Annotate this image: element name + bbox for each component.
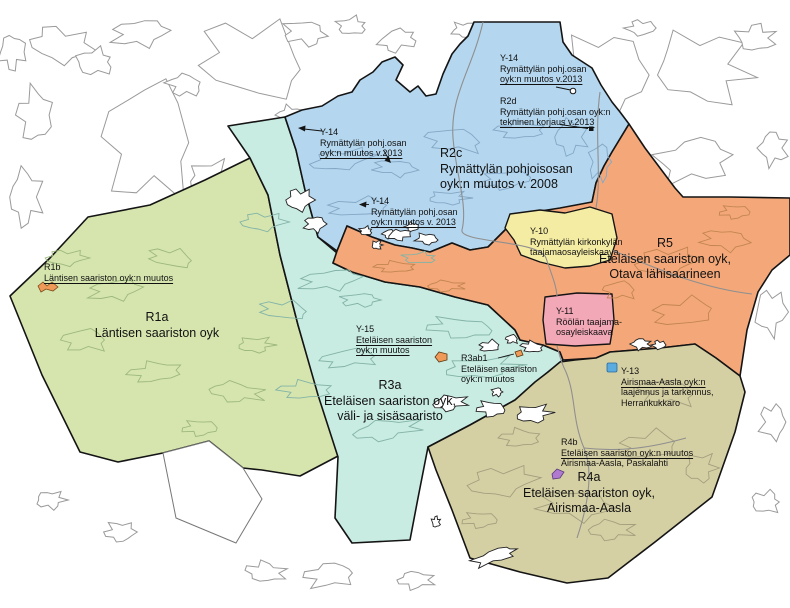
label-code: Y-11 — [556, 306, 622, 317]
label-line: Rymättylän pohjoisosan — [440, 162, 573, 178]
label-line: Herrankukkaro — [621, 398, 714, 409]
label-code: Y-14 — [320, 127, 407, 138]
label-line: väli- ja sisäsaaristo — [295, 409, 485, 425]
label-line: Läntisen saariston oyk — [62, 326, 252, 342]
label-code: R2d — [500, 96, 611, 107]
label-line: Rymättylän pohj.osan — [320, 138, 407, 149]
label-y11: Y-11 Röölän taajama- osayleiskaava — [556, 306, 622, 338]
label-r2d: R2d Rymättylän pohj.osan oyk:n tekninen … — [500, 96, 611, 128]
island-shape — [245, 560, 287, 581]
label-line: Rymättylän pohj.osan oyk:n — [500, 107, 611, 118]
island-shape — [0, 36, 26, 72]
marker-y14-north-circle — [570, 88, 576, 94]
label-code: R5 — [572, 236, 758, 252]
label-line: oyk:n muutos v.2013 — [500, 74, 587, 85]
label-r4a: R4a Eteläisen saariston oyk, Airismaa-Aa… — [494, 470, 684, 517]
label-line: Airismaa-Aasla — [494, 501, 684, 517]
label-line: Airismaa-Aasla oyk:n — [621, 377, 714, 388]
island-shape — [110, 21, 171, 49]
label-line: oyk:n muutos — [356, 345, 432, 356]
label-code: R1b — [44, 262, 173, 273]
label-line: Röölän taajama- — [556, 317, 622, 328]
island-shape — [757, 132, 788, 169]
island-shape — [101, 79, 189, 202]
label-code: Y-14 — [500, 53, 587, 64]
label-code: R3a — [295, 378, 485, 394]
marker-y13-herrankukkaro — [607, 363, 617, 372]
label-r1b: R1b Läntisen saariston oyk:n muutos — [44, 262, 173, 283]
label-line: Rymättylän pohj.osan — [371, 207, 458, 218]
label-line: Airismaa-Aasla, Paskalahti — [561, 458, 693, 469]
label-y15: Y-15 Eteläisen saariston oyk:n muutos — [356, 324, 432, 356]
label-line: oyk:n muutos v. 2013 — [371, 217, 458, 228]
label-code: R4a — [494, 470, 684, 486]
label-code: R4b — [561, 437, 693, 448]
label-line: tekninen korjaus v.2013 — [500, 117, 611, 128]
label-line: Eteläisen saariston — [356, 335, 432, 346]
island-shape — [755, 290, 789, 339]
label-line: laajennus ja tarkennus, — [621, 387, 714, 398]
map-canvas — [0, 0, 790, 608]
label-r2c: R2c Rymättylän pohjoisosan oyk:n muutos … — [440, 146, 573, 193]
island-shape — [198, 19, 300, 99]
island-shape — [335, 15, 365, 33]
label-line: Otava lähisaarineen — [572, 267, 758, 283]
label-r3a: R3a Eteläisen saariston oyk, väli- ja si… — [295, 378, 485, 425]
island-shape — [283, 22, 328, 47]
label-y14-north: Y-14 Rymättylän pohj.osan oyk:n muutos v… — [500, 53, 587, 85]
label-y13: Y-13 Airismaa-Aasla oyk:n laajennus ja t… — [621, 366, 714, 408]
label-line: oyk:n muutos v.2013 — [320, 148, 407, 159]
label-line: Rymättylän pohj.osan — [500, 64, 587, 75]
label-line: Eteläisen saariston — [461, 364, 537, 375]
island-shape — [752, 489, 779, 512]
label-r5: R5 Eteläisen saariston oyk, Otava lähisa… — [572, 236, 758, 283]
label-code: Y-13 — [621, 366, 714, 377]
island-shape — [37, 492, 68, 511]
label-code: R1a — [62, 310, 252, 326]
label-r4b: R4b Eteläisen saariston oyk:n muutos Air… — [561, 437, 693, 469]
label-line: Eteläisen saariston oyk, — [572, 252, 758, 268]
island-shape — [376, 28, 416, 53]
island-shape — [623, 20, 656, 37]
label-code: Y-14 — [371, 196, 458, 207]
label-code: Y-10 — [530, 226, 623, 237]
label-line: Eteläisen saariston oyk, — [295, 394, 485, 410]
island-shape — [397, 571, 435, 590]
label-line: oyk:n muutos v. 2008 — [440, 177, 573, 193]
island-shape — [16, 83, 53, 139]
island-shape — [10, 166, 43, 229]
label-line: Eteläisen saariston oyk, — [494, 486, 684, 502]
label-line: Läntisen saariston oyk:n muutos — [44, 273, 173, 284]
label-y14-west: Y-14 Rymättylän pohj.osan oyk:n muutos v… — [320, 127, 407, 159]
island-shape — [758, 404, 786, 442]
island-shape — [104, 523, 138, 543]
island-shape — [431, 516, 440, 527]
label-y14-mid: Y-14 Rymättylän pohj.osan oyk:n muutos v… — [371, 196, 458, 228]
label-line: osayleiskaava — [556, 327, 622, 338]
label-code: R3ab1 — [461, 353, 537, 364]
label-r1a: R1a Läntisen saariston oyk — [62, 310, 252, 341]
archipelago-plan-map: Y-14 Rymättylän pohj.osan oyk:n muutos v… — [0, 0, 790, 608]
label-code: R2c — [440, 146, 573, 162]
island-shape — [303, 563, 353, 588]
label-code: Y-15 — [356, 324, 432, 335]
label-line: Eteläisen saariston oyk:n muutos — [561, 448, 693, 459]
